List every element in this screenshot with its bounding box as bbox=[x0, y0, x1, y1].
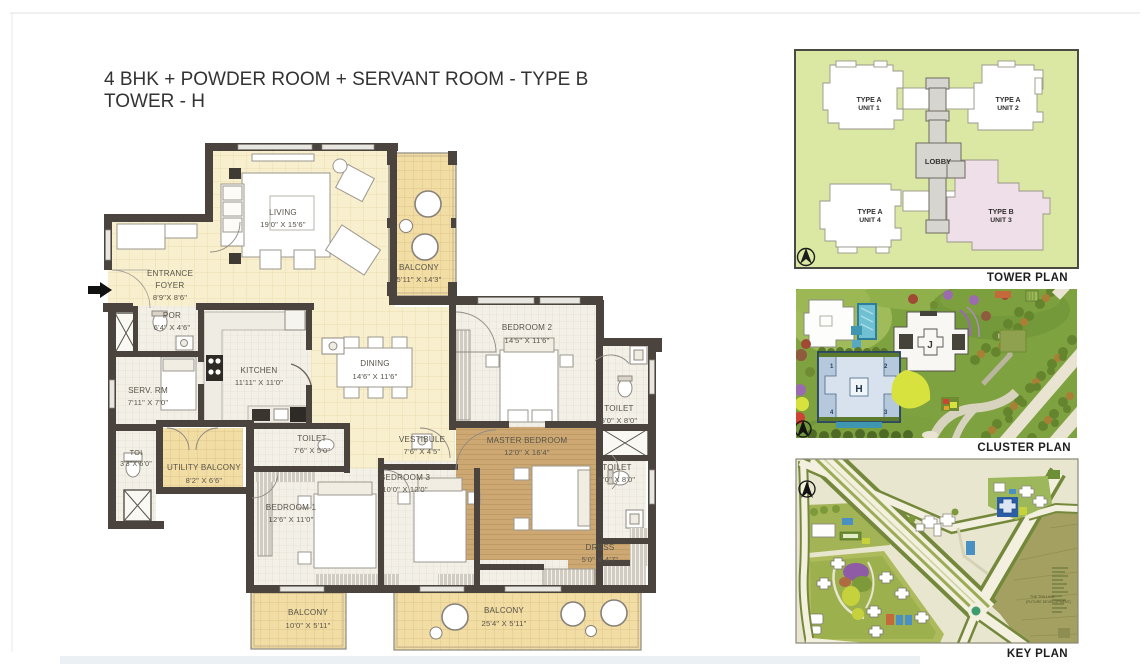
svg-text:TYPE B: TYPE B bbox=[988, 209, 1013, 216]
svg-text:UNIT 2: UNIT 2 bbox=[997, 105, 1019, 112]
svg-text:3'3"X 6'0": 3'3"X 6'0" bbox=[120, 461, 152, 468]
svg-text:11'11" X 11'0": 11'11" X 11'0" bbox=[235, 378, 283, 387]
svg-text:BEDROOM 2: BEDROOM 2 bbox=[502, 323, 553, 332]
svg-text:MASTER BEDROOM: MASTER BEDROOM bbox=[487, 436, 568, 445]
svg-text:LOBBY: LOBBY bbox=[925, 157, 951, 166]
svg-text:14'6" X 11'6": 14'6" X 11'6" bbox=[353, 372, 398, 381]
svg-text:10'0" X 12'0": 10'0" X 12'0" bbox=[382, 485, 428, 494]
svg-text:LIVING: LIVING bbox=[269, 208, 297, 217]
svg-text:14'5" X 11'6": 14'5" X 11'6" bbox=[505, 336, 550, 345]
svg-text:TOI: TOI bbox=[130, 448, 143, 457]
svg-text:FOYER: FOYER bbox=[156, 281, 185, 290]
svg-text:5'0" X 8'0": 5'0" X 8'0" bbox=[601, 416, 638, 425]
svg-text:TYPE A: TYPE A bbox=[857, 209, 882, 216]
svg-text:10'0" X 5'11": 10'0" X 5'11" bbox=[286, 621, 331, 630]
svg-text:TYPE A: TYPE A bbox=[995, 97, 1020, 104]
svg-text:J: J bbox=[927, 340, 933, 351]
svg-text:UNIT 3: UNIT 3 bbox=[990, 217, 1012, 224]
svg-text:5'11" X 14'3": 5'11" X 14'3" bbox=[397, 275, 442, 284]
svg-text:UNIT 1: UNIT 1 bbox=[858, 105, 880, 112]
svg-text:TOILET: TOILET bbox=[297, 434, 326, 443]
svg-text:UNIT 4: UNIT 4 bbox=[859, 217, 881, 224]
svg-text:DINING: DINING bbox=[360, 359, 390, 368]
svg-text:BEDROOM 1: BEDROOM 1 bbox=[266, 503, 317, 512]
svg-text:8'9"X 8'6": 8'9"X 8'6" bbox=[153, 293, 187, 302]
svg-text:UTILITY BALCONY: UTILITY BALCONY bbox=[167, 463, 241, 472]
svg-text:7'6" X 4'5": 7'6" X 4'5" bbox=[404, 447, 441, 456]
svg-text:TOWER - H: TOWER - H bbox=[104, 91, 205, 112]
svg-text:POR: POR bbox=[163, 311, 181, 320]
svg-text:BALCONY: BALCONY bbox=[399, 263, 439, 272]
svg-text:5'0" X 8'0": 5'0" X 8'0" bbox=[599, 475, 636, 484]
svg-text:BEDROOM 3: BEDROOM 3 bbox=[380, 473, 431, 482]
svg-text:(FUTURE DEVELOPMENT): (FUTURE DEVELOPMENT) bbox=[1026, 600, 1071, 604]
svg-text:KEY PLAN: KEY PLAN bbox=[1007, 648, 1068, 660]
svg-text:TOWER PLAN: TOWER PLAN bbox=[987, 272, 1068, 284]
svg-text:BALCONY: BALCONY bbox=[484, 606, 524, 615]
svg-text:SERV. RM: SERV. RM bbox=[128, 386, 168, 395]
svg-text:CLUSTER PLAN: CLUSTER PLAN bbox=[977, 442, 1071, 454]
svg-text:KITCHEN: KITCHEN bbox=[241, 366, 278, 375]
svg-text:7'11" X 7'0": 7'11" X 7'0" bbox=[128, 398, 169, 407]
svg-text:TOILET: TOILET bbox=[602, 463, 631, 472]
svg-text:5'0" X 4'7": 5'0" X 4'7" bbox=[582, 555, 619, 564]
svg-text:VESTIBULE: VESTIBULE bbox=[399, 435, 446, 444]
svg-text:8'2" X 6'6": 8'2" X 6'6" bbox=[186, 476, 223, 485]
svg-text:THE TRILLIUM: THE TRILLIUM bbox=[1030, 595, 1055, 599]
svg-text:TOILET: TOILET bbox=[604, 404, 633, 413]
svg-text:BALCONY: BALCONY bbox=[288, 608, 328, 617]
svg-text:DRESS: DRESS bbox=[586, 543, 615, 552]
svg-text:7'6" X 5'0": 7'6" X 5'0" bbox=[294, 446, 331, 455]
svg-text:19'0" X 15'6": 19'0" X 15'6" bbox=[260, 220, 306, 229]
svg-text:12'0" X 16'4": 12'0" X 16'4" bbox=[504, 448, 550, 457]
svg-text:6'4" X 4'6": 6'4" X 4'6" bbox=[154, 323, 191, 332]
svg-text:ENTRANCE: ENTRANCE bbox=[147, 269, 194, 278]
svg-text:TYPE A: TYPE A bbox=[856, 97, 881, 104]
svg-text:H: H bbox=[855, 384, 862, 395]
svg-text:25'4" X 5'11": 25'4" X 5'11" bbox=[482, 619, 527, 628]
svg-text:4 BHK + POWDER ROOM + SERVANT: 4 BHK + POWDER ROOM + SERVANT ROOM - TYP… bbox=[104, 69, 588, 90]
svg-text:12'6" X 11'0": 12'6" X 11'0" bbox=[269, 515, 314, 524]
